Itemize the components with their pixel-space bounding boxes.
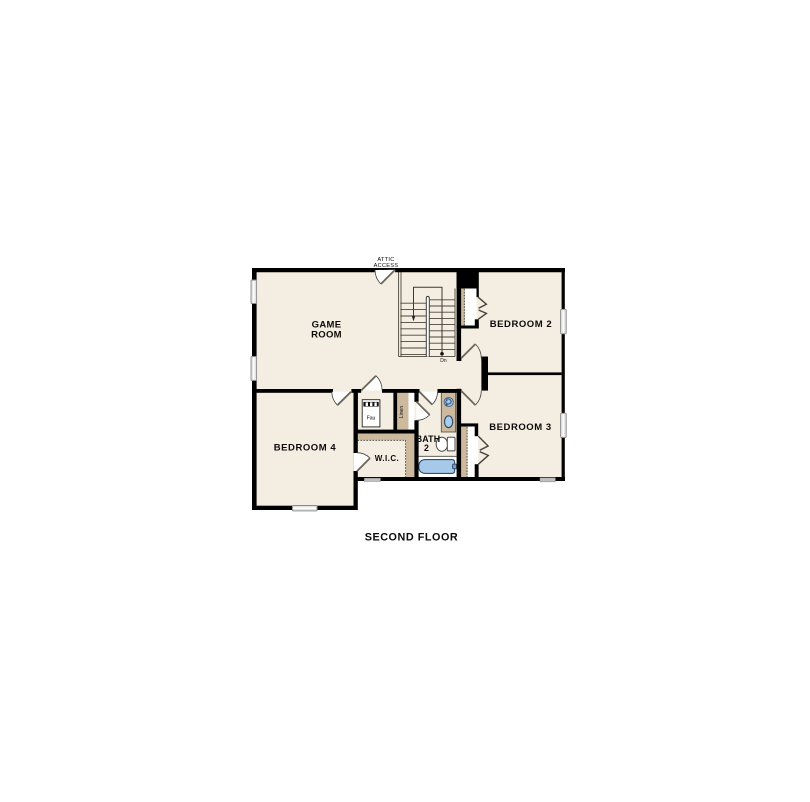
svg-text:Linen: Linen bbox=[399, 406, 405, 418]
svg-text:ACCESS: ACCESS bbox=[374, 263, 399, 269]
svg-text:ROOM: ROOM bbox=[311, 330, 342, 341]
svg-text:BEDROOM 4: BEDROOM 4 bbox=[274, 443, 337, 454]
svg-text:Fau: Fau bbox=[367, 416, 376, 422]
svg-text:SECOND FLOOR: SECOND FLOOR bbox=[365, 532, 459, 544]
svg-text:W.I.C.: W.I.C. bbox=[375, 454, 399, 463]
svg-text:BEDROOM 2: BEDROOM 2 bbox=[490, 319, 552, 330]
svg-text:2: 2 bbox=[424, 443, 429, 453]
svg-text:Dn: Dn bbox=[440, 358, 447, 364]
svg-text:BEDROOM 3: BEDROOM 3 bbox=[489, 422, 551, 433]
